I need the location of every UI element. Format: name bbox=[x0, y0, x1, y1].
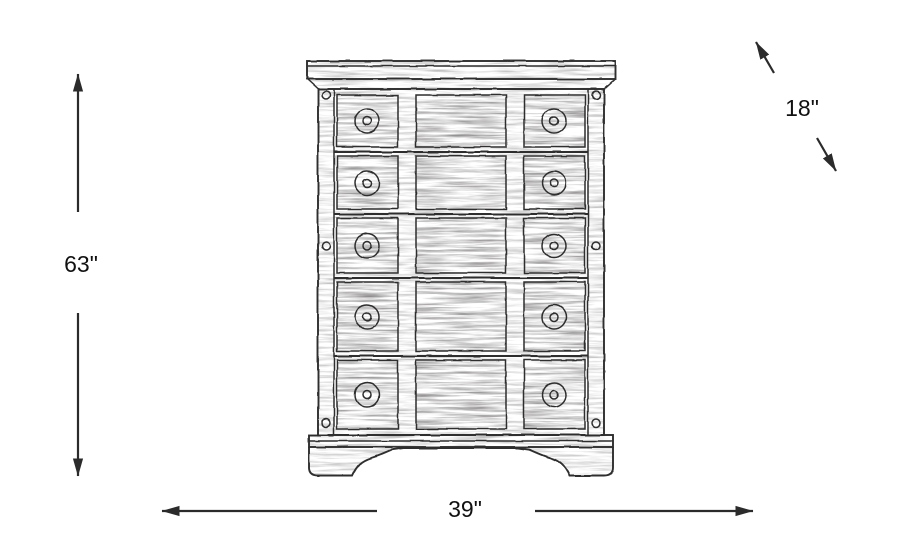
height-dimension-label: 63" bbox=[55, 251, 107, 277]
width-dimension-label: 39" bbox=[437, 496, 493, 522]
depth-arrow-upper-segment bbox=[756, 42, 774, 73]
depth-arrow-lower-segment bbox=[817, 138, 836, 171]
depth-dimension-label: 18" bbox=[773, 95, 831, 121]
drawer-texture bbox=[337, 95, 585, 429]
chest-illustration bbox=[300, 52, 636, 486]
product-dimension-diagram: 63" 39" 18" bbox=[0, 0, 900, 550]
